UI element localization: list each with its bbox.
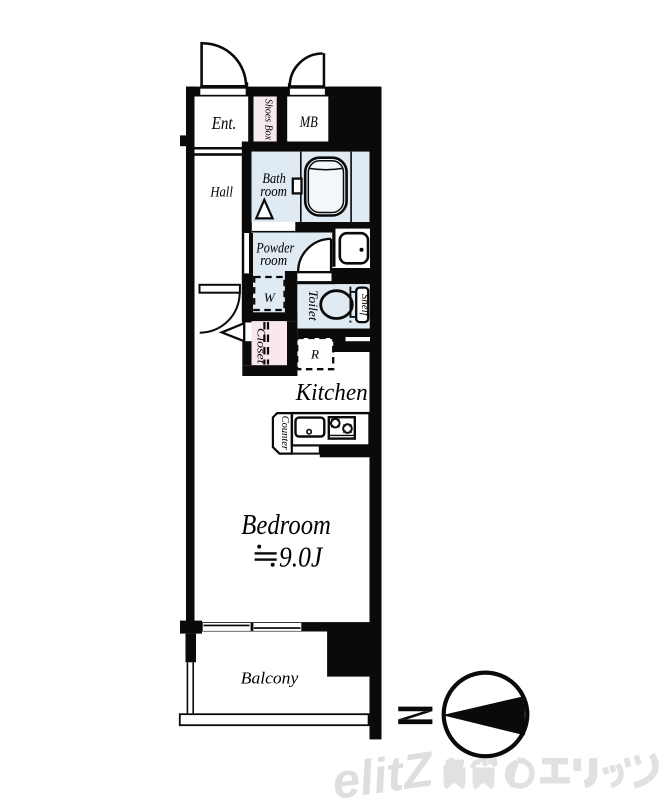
- svg-text:Shoes Box: Shoes Box: [262, 99, 273, 141]
- svg-text:MB: MB: [299, 114, 318, 131]
- svg-text:9.0J: 9.0J: [279, 541, 323, 573]
- svg-text:Counter: Counter: [279, 416, 290, 451]
- svg-text:Hall: Hall: [210, 184, 233, 200]
- svg-text:Ent.: Ent.: [211, 113, 236, 133]
- svg-text:Shelf: Shelf: [359, 294, 371, 318]
- svg-text:Bedroom: Bedroom: [241, 509, 331, 541]
- svg-text:Balcony: Balcony: [241, 668, 299, 687]
- svg-text:Toilet: Toilet: [306, 290, 321, 321]
- svg-text:room: room: [260, 253, 287, 269]
- svg-text:W: W: [264, 290, 276, 305]
- svg-text:Kitchen: Kitchen: [295, 380, 368, 406]
- svg-text:R: R: [310, 347, 319, 362]
- svg-text:Closet: Closet: [255, 328, 267, 365]
